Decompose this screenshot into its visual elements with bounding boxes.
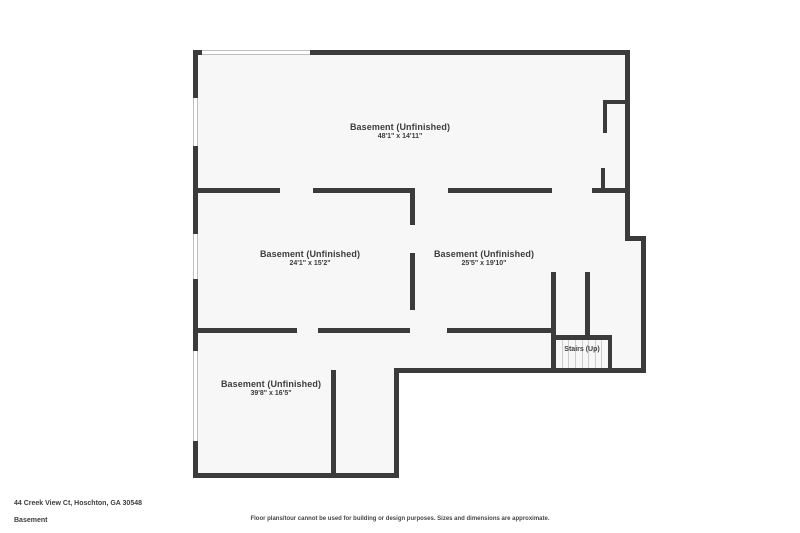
room-label-top-basement: Basement (Unfinished) 48'1" x 14'11"	[350, 122, 450, 140]
room-dimensions: 39'8" x 16'5"	[221, 390, 321, 397]
window-left-wall-2	[193, 234, 198, 279]
interior-wall-h330-left	[195, 328, 297, 333]
stair-tread	[601, 340, 602, 368]
room-name: Basement (Unfinished)	[260, 249, 360, 259]
right-wall-stub	[601, 168, 605, 193]
interior-wall-h330-mid	[318, 328, 410, 333]
stair-wall-mid	[585, 272, 590, 340]
room-name: Basement (Unfinished)	[350, 122, 450, 132]
room-name: Basement (Unfinished)	[221, 379, 321, 389]
alcove-wall-vertical	[603, 100, 607, 133]
footer-disclaimer: Floor plans/tour cannot be used for buil…	[250, 516, 549, 522]
stair-tread	[568, 340, 569, 368]
exterior-wall-bottom-room-right	[394, 368, 399, 478]
exterior-wall-right-lower	[641, 236, 646, 373]
room-label-middle-right-basement: Basement (Unfinished) 25'5" x 19'10"	[434, 249, 534, 267]
alcove-wall-horizontal	[605, 100, 630, 104]
stairs-label: Stairs (Up)	[564, 346, 599, 353]
stair-treads	[556, 340, 608, 368]
interior-wall-h190-left	[195, 188, 280, 193]
room-dimensions: 25'5" x 19'10"	[434, 260, 534, 267]
room-label-bottom-basement: Basement (Unfinished) 39'8" x 16'5"	[221, 379, 321, 397]
stair-box-right-wall	[608, 335, 612, 371]
room-name: Basement (Unfinished)	[434, 249, 534, 259]
room-label-middle-left-basement: Basement (Unfinished) 24'1" x 15'2"	[260, 249, 360, 267]
room-dimensions: 24'1" x 15'2"	[260, 260, 360, 267]
stair-tread	[588, 340, 589, 368]
window-left-wall-1	[193, 98, 198, 146]
interior-wall-h190-far-right	[592, 188, 628, 193]
floor-plan-canvas: Basement (Unfinished) 48'1" x 14'11" Bas…	[0, 0, 800, 533]
stair-tread	[595, 340, 596, 368]
stair-tread	[582, 340, 583, 368]
footer-floor-name: Basement	[14, 517, 47, 524]
bottom-room-partition-wall	[331, 370, 336, 478]
exterior-wall-right-upper	[625, 50, 630, 241]
room-dimensions: 48'1" x 14'11"	[350, 133, 450, 140]
footer-address: 44 Creek View Ct, Hoschton, GA 30548	[14, 500, 142, 507]
interior-wall-v413-upper	[410, 188, 415, 225]
window-left-wall-3	[193, 351, 198, 441]
stair-tread	[575, 340, 576, 368]
interior-wall-v413-lower	[410, 253, 415, 310]
interior-wall-h330-right	[447, 328, 555, 333]
stair-tread	[562, 340, 563, 368]
interior-wall-h190-mid	[313, 188, 415, 193]
window-top-wall	[202, 50, 310, 55]
exterior-wall-bottom	[193, 473, 399, 478]
interior-wall-h190-right	[448, 188, 552, 193]
